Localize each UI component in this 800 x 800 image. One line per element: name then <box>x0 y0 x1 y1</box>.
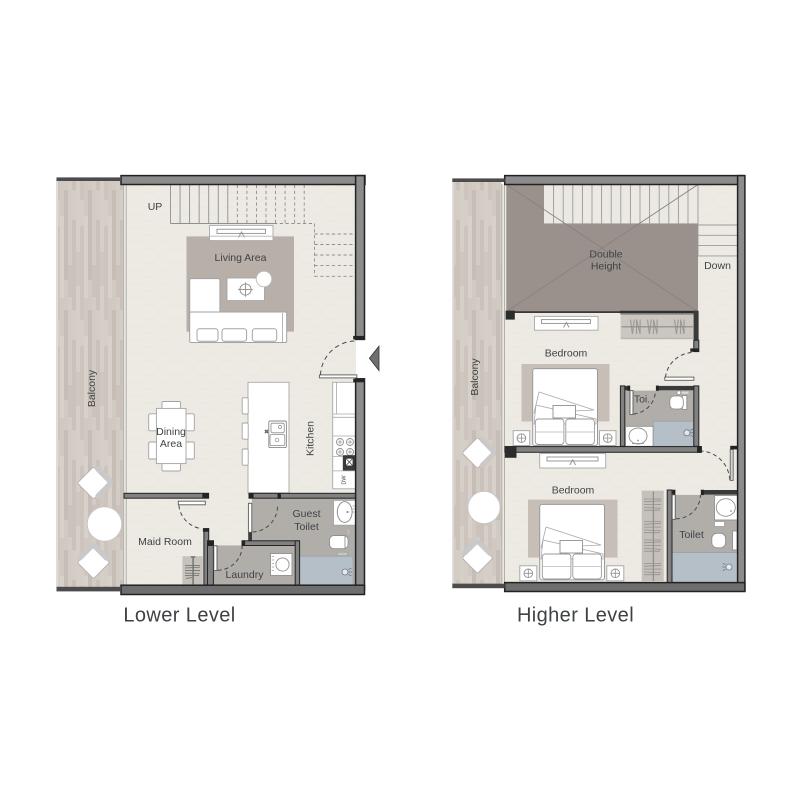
svg-text:Bedroom: Bedroom <box>545 348 588 360</box>
svg-text:Height: Height <box>591 261 621 273</box>
svg-text:Laundry: Laundry <box>226 569 265 581</box>
svg-text:Maid Room: Maid Room <box>138 536 192 548</box>
svg-text:Toilet: Toilet <box>679 529 704 541</box>
svg-text:Living Area: Living Area <box>215 252 267 264</box>
svg-text:Area: Area <box>160 438 182 450</box>
svg-text:Balcony: Balcony <box>86 369 98 407</box>
svg-text:UP: UP <box>148 201 163 213</box>
svg-text:Toilet: Toilet <box>294 521 319 533</box>
svg-text:Kitchen: Kitchen <box>305 421 317 456</box>
svg-text:Down: Down <box>704 260 731 272</box>
svg-text:Higher Level: Higher Level <box>517 605 634 627</box>
svg-text:Double: Double <box>589 249 622 261</box>
svg-text:Balcony: Balcony <box>469 358 481 396</box>
svg-text:Bedroom: Bedroom <box>552 485 595 497</box>
svg-text:Guest: Guest <box>292 508 320 520</box>
svg-text:DW: DW <box>342 475 348 485</box>
svg-text:Dining: Dining <box>156 426 186 438</box>
svg-text:Toi.: Toi. <box>634 394 650 406</box>
svg-text:Lower Level: Lower Level <box>123 605 235 627</box>
